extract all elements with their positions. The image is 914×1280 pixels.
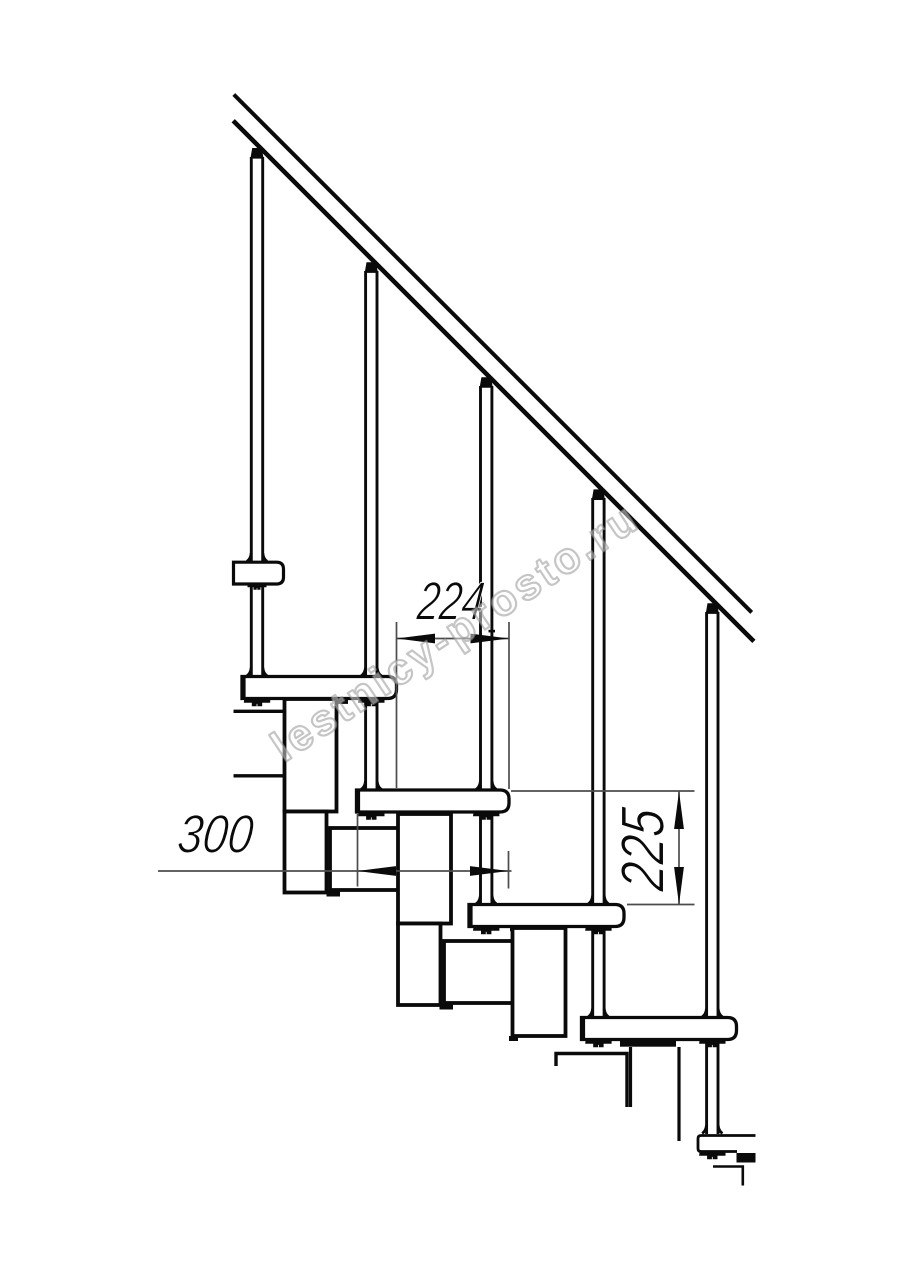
svg-text:225: 225 xyxy=(609,804,677,894)
svg-text:lestnicy-prosto.ru: lestnicy-prosto.ru xyxy=(263,493,648,771)
svg-text:300: 300 xyxy=(175,805,257,865)
